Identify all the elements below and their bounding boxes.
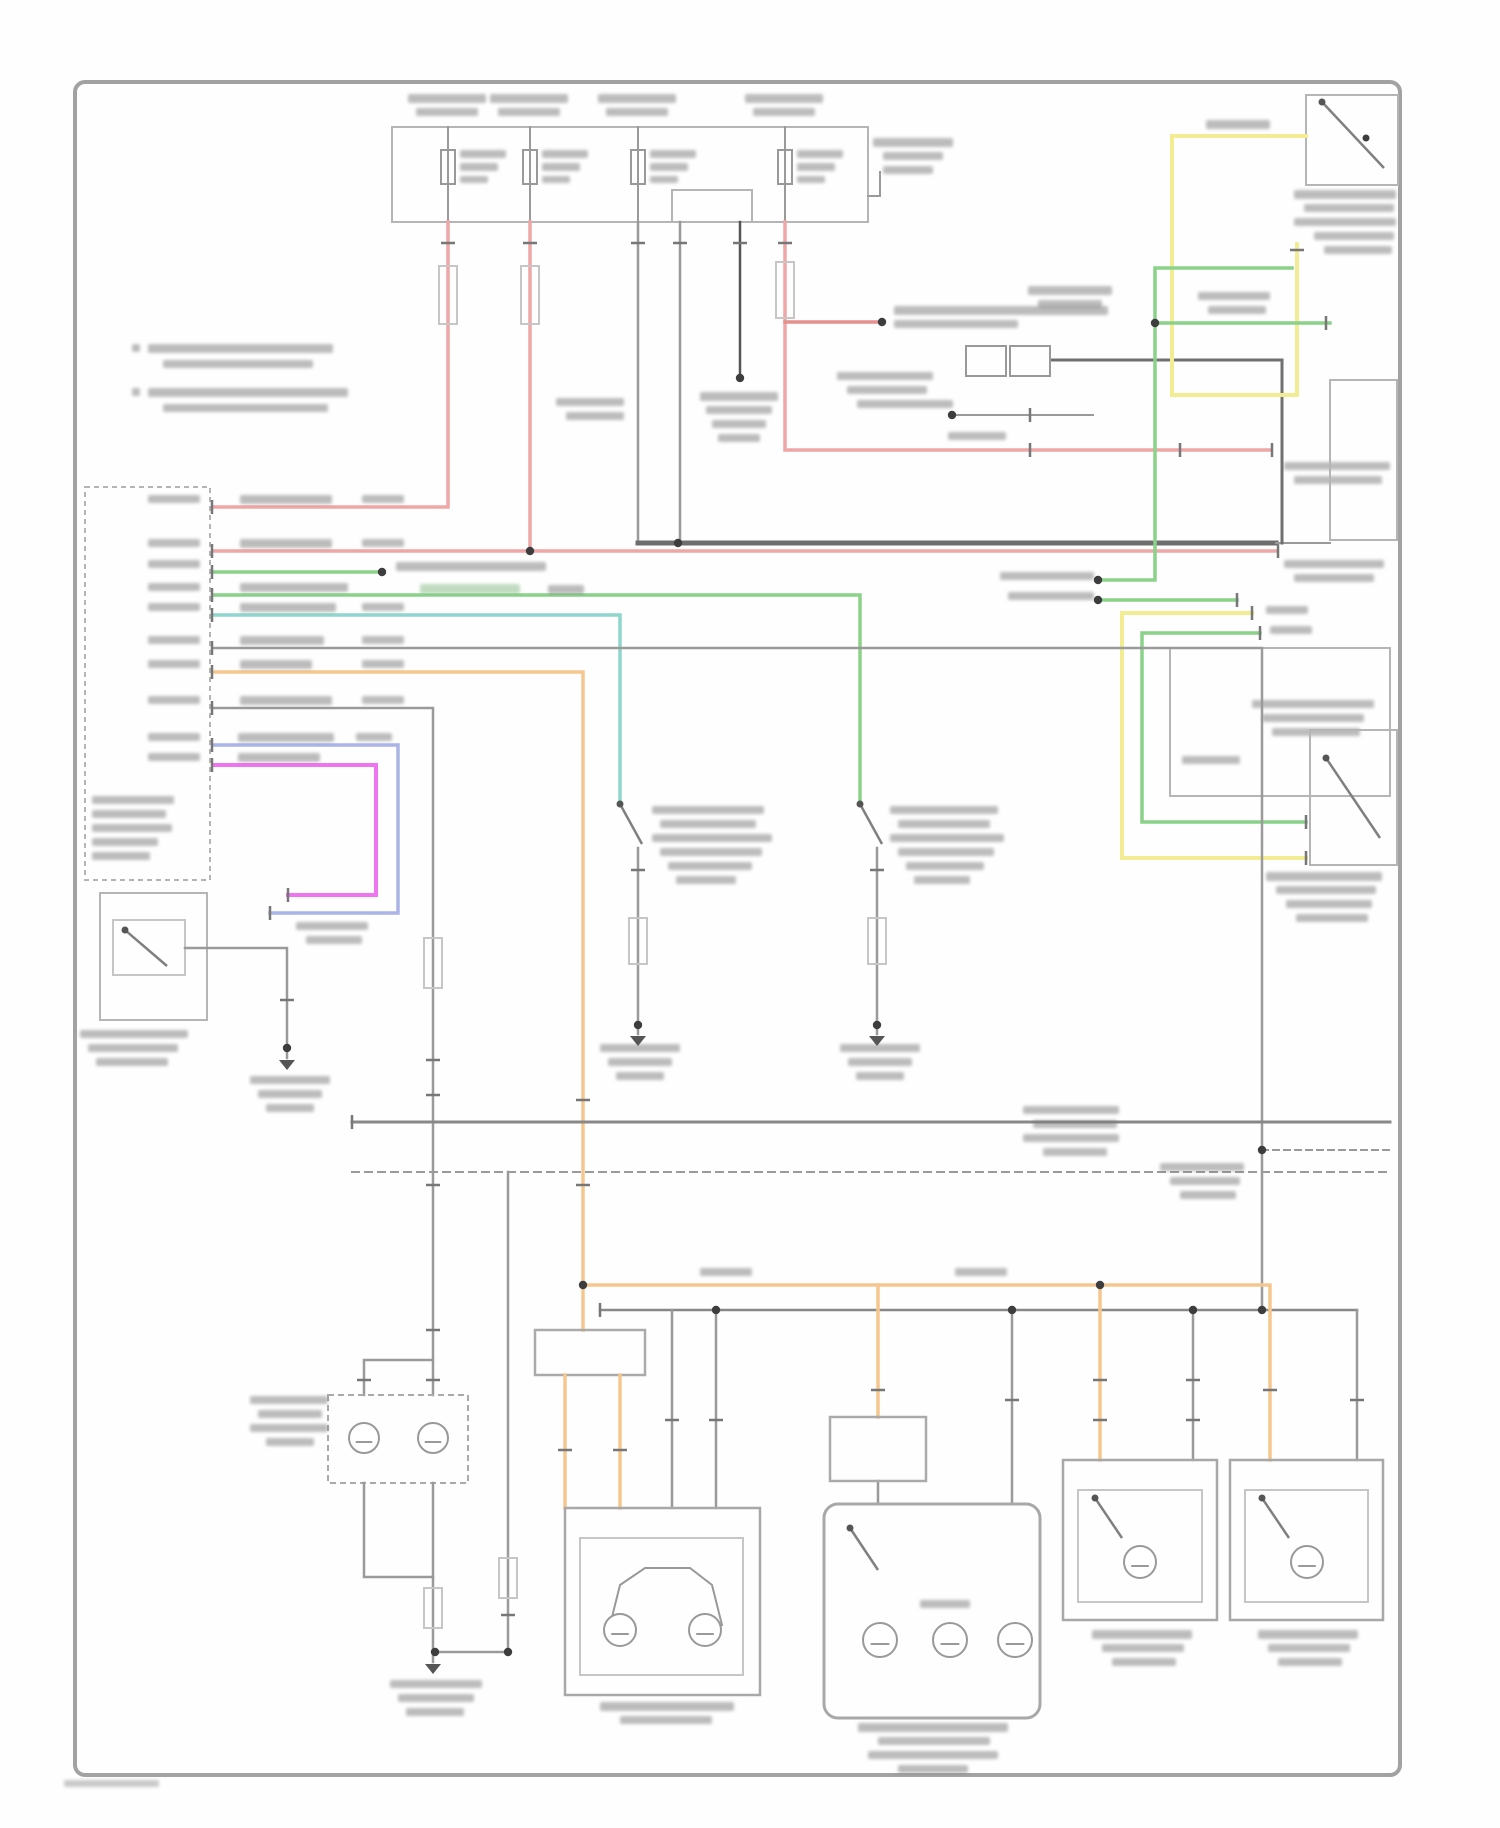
- switch-pivot-dot: [617, 801, 624, 808]
- label-smudge: [890, 834, 1004, 842]
- label-smudge: [1286, 900, 1372, 908]
- label-smudge: [797, 176, 825, 183]
- label-smudge: [1266, 872, 1382, 881]
- label-smudge: [362, 495, 404, 503]
- label-smudge: [266, 1438, 314, 1446]
- label-smudge: [1294, 190, 1396, 199]
- splice-dot: [1094, 576, 1102, 584]
- label-smudge: [1028, 286, 1112, 295]
- label-smudge: [240, 636, 324, 645]
- wiring-diagram-canvas: [0, 0, 1500, 1828]
- label-smudge: [238, 753, 320, 762]
- label-smudge: [362, 696, 404, 704]
- switch-blade: [850, 1528, 878, 1570]
- splice-dot: [736, 374, 744, 382]
- wire: [1100, 268, 1292, 580]
- switch-blade: [125, 930, 167, 966]
- switch-pivot-dot: [1319, 99, 1326, 106]
- switch-blade: [860, 804, 882, 844]
- lamp-bulb: [1291, 1546, 1323, 1578]
- label-smudge: [148, 344, 333, 353]
- label-smudge: [676, 876, 736, 884]
- label-smudge: [1276, 886, 1376, 894]
- label-smudge: [460, 150, 506, 158]
- label-smudge: [898, 820, 990, 828]
- label-smudge: [266, 1104, 314, 1112]
- label-smudge: [718, 434, 760, 442]
- label-smudge: [650, 150, 696, 158]
- switch-blade: [620, 804, 642, 844]
- switch-pivot-dot: [1259, 1495, 1266, 1502]
- splice-dot: [634, 1021, 642, 1029]
- splice-dot: [431, 1648, 439, 1656]
- label-smudge: [1304, 204, 1394, 212]
- label-smudge: [1284, 462, 1390, 470]
- label-smudge: [490, 94, 568, 103]
- cargo-lamp-assembly: [565, 1508, 760, 1695]
- ground-symbol: [279, 1060, 295, 1070]
- door-switch-box: [1306, 95, 1398, 185]
- label-smudge: [566, 412, 624, 420]
- label-smudge: [92, 824, 172, 832]
- label-smudge: [1170, 1177, 1240, 1185]
- label-smudge: [148, 660, 200, 668]
- label-smudge: [840, 1044, 920, 1052]
- label-smudge: [1284, 560, 1384, 568]
- label-smudge: [1268, 1644, 1350, 1652]
- label-smudge: [955, 1268, 1007, 1276]
- label-smudge: [1278, 1658, 1342, 1666]
- label-smudge: [396, 562, 546, 571]
- label-smudge: [1023, 1106, 1119, 1114]
- label-smudge: [132, 344, 140, 352]
- label-smudge: [668, 862, 752, 870]
- switch-pivot-dot: [1323, 755, 1330, 762]
- label-smudge: [542, 176, 570, 183]
- label-smudge: [1294, 574, 1374, 582]
- lamp-bulb: [418, 1423, 448, 1453]
- label-smudge: [1324, 246, 1392, 254]
- label-smudge: [1102, 1644, 1184, 1652]
- label-smudge: [92, 810, 166, 818]
- component-box: [580, 1538, 743, 1675]
- splice-dot: [1096, 1281, 1104, 1289]
- label-smudge: [148, 495, 200, 503]
- splice-dot: [1008, 1306, 1016, 1314]
- splice-dot: [504, 1648, 512, 1656]
- label-smudge: [132, 388, 140, 396]
- label-smudge: [848, 1058, 912, 1066]
- label-smudge: [1038, 300, 1102, 308]
- label-smudge: [914, 876, 970, 884]
- label-smudge: [92, 852, 150, 860]
- switch-blade: [1095, 1498, 1122, 1538]
- wire: [364, 1360, 433, 1395]
- splice-dot: [1363, 135, 1370, 142]
- splice-dot: [579, 1281, 587, 1289]
- label-smudge: [163, 404, 328, 412]
- label-smudge: [1262, 714, 1364, 722]
- label-smudge: [1206, 120, 1270, 129]
- splice-dot: [283, 1044, 291, 1052]
- wiring-diagram-page: [0, 0, 1500, 1828]
- fuse-block-module: [672, 190, 752, 222]
- label-smudge: [548, 585, 584, 594]
- label-smudge: [148, 636, 200, 644]
- label-smudge: [1314, 232, 1394, 240]
- wire: [214, 648, 1262, 1310]
- wire: [868, 172, 880, 196]
- switch-pivot-dot: [1092, 1495, 1099, 1502]
- component-box: [1330, 380, 1397, 540]
- label-smudge: [1023, 1134, 1119, 1142]
- label-smudge: [1043, 1148, 1107, 1156]
- label-smudge: [556, 398, 624, 406]
- label-smudge: [148, 583, 200, 591]
- label-smudge: [606, 108, 668, 116]
- courtesy-lamp-assembly: [1230, 1460, 1383, 1620]
- label-smudge: [1180, 1191, 1236, 1199]
- label-smudge: [1270, 626, 1312, 634]
- label-smudge: [660, 820, 756, 828]
- label-smudge: [250, 1076, 330, 1084]
- label-smudge: [460, 163, 498, 171]
- label-smudge: [652, 806, 764, 814]
- jamb-switch-box: [100, 893, 207, 1020]
- label-smudge: [362, 636, 404, 644]
- label-smudge: [1258, 1630, 1358, 1639]
- connector-block: [1010, 346, 1050, 376]
- wire: [185, 948, 287, 1058]
- label-smudge: [240, 539, 332, 548]
- switch-blade: [1326, 758, 1380, 838]
- label-smudge: [600, 1044, 680, 1052]
- ground-symbol: [425, 1664, 441, 1674]
- label-smudge: [398, 1694, 474, 1702]
- label-smudge: [616, 1072, 664, 1080]
- label-smudge: [1296, 914, 1368, 922]
- label-smudge: [837, 372, 933, 380]
- wire: [214, 765, 376, 895]
- label-smudge: [1252, 700, 1374, 708]
- label-smudge: [542, 163, 580, 171]
- label-smudge: [406, 1708, 464, 1716]
- label-smudge: [240, 603, 336, 612]
- label-smudge: [542, 150, 588, 158]
- lamp-bulb: [1124, 1546, 1156, 1578]
- label-smudge: [258, 1090, 322, 1098]
- label-smudge: [240, 660, 312, 669]
- label-smudge: [148, 388, 348, 397]
- label-smudge: [598, 94, 676, 103]
- label-smudge: [306, 936, 362, 944]
- label-smudge: [857, 400, 953, 408]
- connector-block: [966, 346, 1006, 376]
- lamp-bulb: [863, 1623, 897, 1657]
- wire: [364, 1483, 433, 1577]
- label-smudge: [1294, 218, 1396, 226]
- label-smudge: [1092, 1630, 1192, 1639]
- label-smudge: [238, 733, 334, 742]
- splice-dot: [1258, 1306, 1266, 1314]
- wire: [1142, 633, 1306, 822]
- label-smudge: [498, 108, 560, 116]
- label-smudge: [96, 1058, 168, 1066]
- label-smudge: [148, 539, 200, 547]
- label-smudge: [416, 108, 478, 116]
- label-smudge: [148, 753, 200, 761]
- label-smudge: [390, 1680, 482, 1688]
- label-smudge: [652, 834, 772, 842]
- splice-dot: [378, 568, 386, 576]
- label-smudge: [240, 696, 332, 705]
- label-smudge: [1112, 1658, 1176, 1666]
- lamp-module: [535, 1330, 645, 1375]
- diagram-layer: [64, 82, 1400, 1787]
- label-smudge: [80, 1030, 188, 1038]
- label-smudge: [920, 1600, 970, 1608]
- label-smudge: [868, 1751, 998, 1759]
- label-smudge: [148, 560, 200, 568]
- label-smudge: [296, 922, 368, 930]
- label-smudge: [906, 862, 984, 870]
- label-smudge: [240, 583, 348, 592]
- label-smudge: [883, 152, 943, 160]
- wire: [214, 708, 433, 1395]
- splice-dot: [526, 547, 534, 555]
- label-smudge: [878, 1737, 990, 1745]
- label-smudge: [250, 1396, 328, 1404]
- label-smudge: [894, 320, 1018, 328]
- label-smudge: [650, 163, 688, 171]
- label-smudge: [92, 838, 158, 846]
- label-smudge: [362, 539, 404, 547]
- label-smudge: [620, 1716, 712, 1724]
- label-smudge: [700, 392, 778, 401]
- splice-dot: [1258, 1146, 1266, 1154]
- splice-dot: [878, 318, 886, 326]
- label-smudge: [797, 163, 835, 171]
- label-smudge: [856, 1072, 904, 1080]
- splice-dot: [948, 411, 956, 419]
- lamp-bulb: [349, 1423, 379, 1453]
- label-smudge: [1198, 292, 1270, 300]
- splice-dot: [712, 1306, 720, 1314]
- label-smudge: [1033, 1120, 1117, 1128]
- label-smudge: [258, 1410, 322, 1418]
- label-smudge: [408, 94, 486, 103]
- splice-dot: [674, 539, 682, 547]
- label-smudge: [712, 420, 766, 428]
- label-smudge: [148, 603, 200, 611]
- label-smudge: [92, 796, 174, 804]
- label-smudge: [745, 94, 823, 103]
- label-smudge: [1208, 306, 1266, 314]
- label-smudge: [608, 1058, 672, 1066]
- label-smudge: [148, 733, 200, 741]
- courtesy-lamp-assembly: [1063, 1460, 1217, 1620]
- label-smudge: [797, 150, 843, 158]
- splice-dot: [1094, 596, 1102, 604]
- label-smudge: [898, 1765, 968, 1773]
- label-smudge: [1294, 476, 1382, 484]
- switch-blade: [1322, 102, 1384, 168]
- label-smudge: [898, 848, 994, 856]
- switch-pivot-dot: [857, 801, 864, 808]
- label-smudge: [420, 584, 520, 594]
- label-smudge: [163, 360, 313, 368]
- splice-dot: [1189, 1306, 1197, 1314]
- lamp-bulb: [689, 1614, 721, 1646]
- label-smudge: [847, 386, 927, 394]
- switch-pivot-dot: [122, 927, 129, 934]
- label-smudge: [883, 166, 933, 174]
- label-smudge: [1000, 572, 1094, 580]
- wire: [1172, 136, 1306, 395]
- label-smudge: [650, 176, 678, 183]
- label-smudge: [356, 733, 392, 741]
- lamp-bulb: [998, 1623, 1032, 1657]
- label-smudge: [250, 1424, 328, 1432]
- label-smudge: [706, 406, 772, 414]
- label-smudge: [1160, 1163, 1244, 1171]
- label-smudge: [858, 1723, 1008, 1732]
- label-smudge: [362, 603, 404, 611]
- label-smudge: [362, 660, 404, 668]
- label-smudge: [1266, 606, 1308, 614]
- label-smudge: [148, 696, 200, 704]
- label-smudge: [1008, 592, 1094, 600]
- corner-caption-smudge: [64, 1780, 159, 1787]
- lamp-bulb: [933, 1623, 967, 1657]
- label-smudge: [88, 1044, 178, 1052]
- label-smudge: [460, 176, 488, 183]
- switch-blade: [1262, 1498, 1289, 1538]
- label-smudge: [240, 495, 332, 504]
- label-smudge: [660, 848, 762, 856]
- switch-pivot-dot: [847, 1525, 854, 1532]
- label-smudge: [700, 1268, 752, 1276]
- splice-dot: [873, 1021, 881, 1029]
- label-smudge: [1182, 756, 1240, 764]
- label-smudge: [890, 806, 998, 814]
- label-smudge: [873, 138, 953, 147]
- lamp-bulb: [604, 1614, 636, 1646]
- label-smudge: [753, 108, 815, 116]
- label-smudge: [948, 432, 1006, 440]
- lamp-module: [830, 1417, 926, 1481]
- splice-dot: [1151, 319, 1159, 327]
- wire: [214, 745, 398, 913]
- label-smudge: [600, 1702, 734, 1711]
